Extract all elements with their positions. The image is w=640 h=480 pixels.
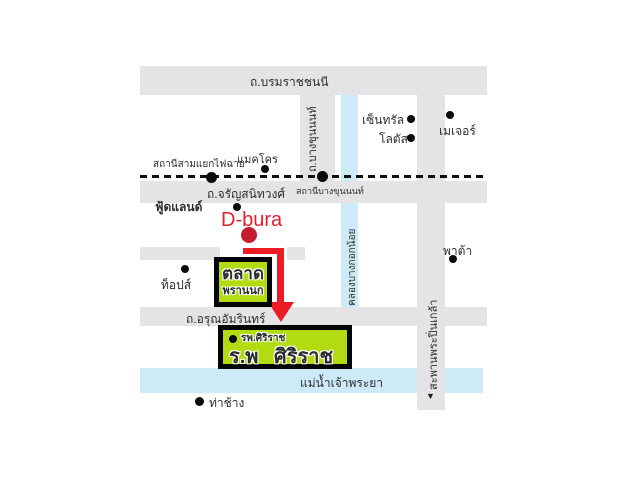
- borommaratchachonnani-label: ถ.บรมราชชนนี: [250, 73, 328, 92]
- market-line2: พรานนก: [219, 284, 267, 298]
- central-label: เซ็นทรัล: [362, 111, 404, 130]
- bangkhunnon-road-label: ถ.บางขุนนนท์: [303, 106, 321, 172]
- siriraj-title: ร.พ ศิริราช: [229, 346, 347, 368]
- pata-label: พาต้า: [443, 242, 472, 261]
- lotus-label: โลตัส: [379, 130, 408, 149]
- major-label: เมเจอร์: [439, 122, 476, 141]
- siriraj-hospital-box: รพ.ศิริราช ร.พ ศิริราช: [218, 325, 352, 369]
- siriraj-marker-dot-icon: [229, 335, 237, 343]
- thachang-label: ท่าช้าง: [209, 394, 244, 413]
- central-dot-icon: [407, 115, 415, 123]
- charansanitwong-label: ถ.จรัญสนิทวงศ์: [207, 185, 285, 204]
- market-line1: ตลาด: [219, 264, 267, 284]
- faichai-station-label: สถานีสามแยกไฟฉาย: [153, 157, 245, 172]
- pata-dot-icon: [449, 255, 457, 263]
- foodland-label: ฟู้ดแลนด์: [155, 198, 202, 217]
- lotus-dot-icon: [407, 134, 415, 142]
- makro-label: แมคโคร: [237, 150, 278, 168]
- siriraj-direction-map: ถ.บรมราชชนนี ถ.จรัญสนิทวงศ์ สถานีบางขุนน…: [0, 0, 640, 480]
- dbura-dot-icon: [241, 227, 257, 243]
- railway-dashed-line: [140, 175, 487, 178]
- faichai-station-dot-icon: [206, 172, 217, 183]
- bridge-direction-arrow-icon: ▼: [426, 392, 435, 401]
- major-dot-icon: [446, 111, 454, 119]
- pinklao-bridge-label: สะพานพระปิ่นเกล้า: [424, 300, 442, 390]
- thachang-dot-icon: [195, 397, 204, 406]
- bangkok-noi-canal-label: คลองบางกอกน้อย: [345, 229, 360, 306]
- siriraj-small-label: รพ.ศิริราช: [241, 331, 285, 346]
- phran-nok-market-box: ตลาด พรานนก: [214, 257, 272, 307]
- tops-dot-icon: [181, 265, 189, 273]
- river-label: แม่น้ำเจ้าพระยา: [300, 374, 383, 393]
- bangkhunnon-station-label: สถานีบางขุนนนท์: [296, 184, 364, 198]
- tops-label: ท็อปส์: [161, 276, 191, 295]
- soi-segment-right: [287, 247, 305, 260]
- soi-segment-left: [140, 247, 220, 260]
- route-arrow-vertical: [277, 248, 284, 304]
- makro-dot-icon: [261, 165, 269, 173]
- bangkhunnon-station-dot-icon: [317, 171, 328, 182]
